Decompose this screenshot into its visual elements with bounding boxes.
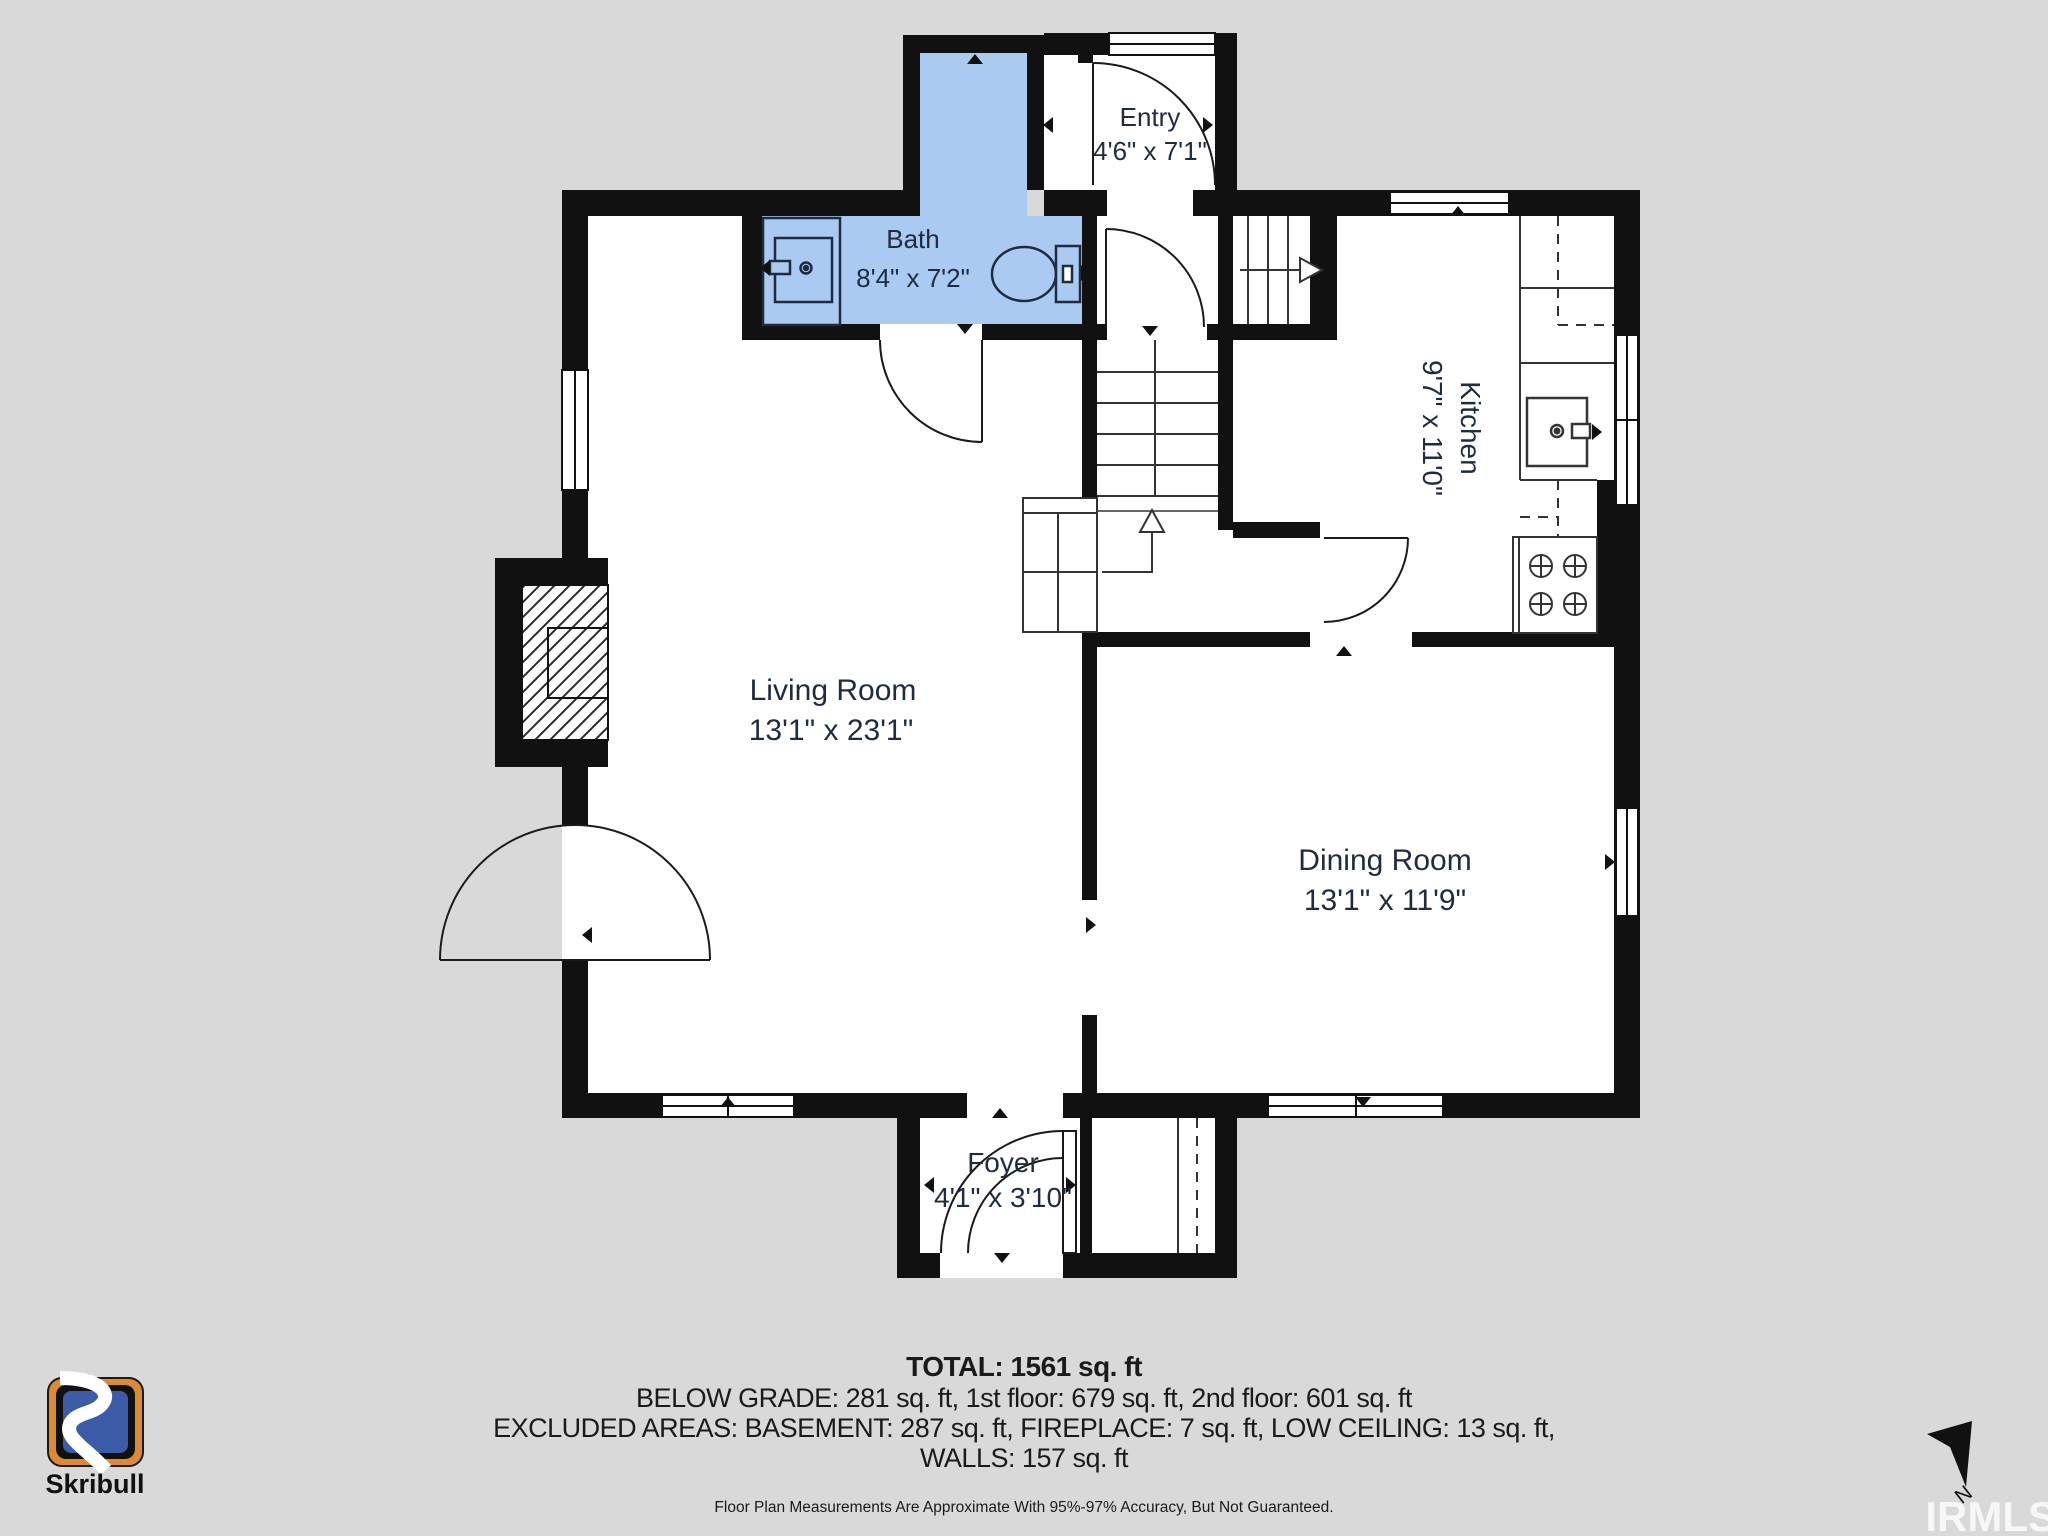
fireplace [522,585,608,740]
summary-line2: EXCLUDED AREAS: BASEMENT: 287 sq. ft, FI… [493,1413,1555,1443]
floor-plan-page: Bath 8'4" x 7'2" Entry 4'6" x 7'1" Kitch… [0,0,2048,1536]
stair-winder-box [1023,498,1097,632]
entry-label: Entry [1120,102,1181,132]
window-living-left [562,370,588,490]
entry-dims: 4'6" x 7'1" [1093,136,1207,166]
summary-line1: BELOW GRADE: 281 sq. ft, 1st floor: 679 … [636,1383,1413,1413]
living-dims: 13'1" x 23'1" [749,714,914,747]
stove [1513,537,1597,633]
bath-dims: 8'4" x 7'2" [856,263,970,293]
summary-total: TOTAL: 1561 sq. ft [906,1351,1142,1382]
logo-text: Skribull [45,1469,144,1499]
dining-dims: 13'1" x 11'9" [1304,884,1466,917]
foyer-label: Foyer [967,1147,1039,1178]
window-dining-right [1616,808,1638,916]
floor-plan-canvas: Bath 8'4" x 7'2" Entry 4'6" x 7'1" Kitch… [0,0,2048,1536]
foyer-dims: 4'1" x 3'10" [934,1182,1072,1213]
room-floors [588,53,1614,1253]
window-dining-bottom [1268,1095,1443,1117]
skribull-logo: Skribull [45,1378,144,1499]
summary-disclaimer: Floor Plan Measurements Are Approximate … [714,1499,1333,1516]
dining-label: Dining Room [1298,844,1471,877]
living-label: Living Room [750,674,917,707]
mls-watermark: IRMLS [1925,1493,2048,1536]
kitchen-dims: 9'7" x 11'0" [1417,360,1448,496]
bath-label: Bath [886,224,940,254]
window-kitchen-top [1390,192,1509,214]
window-entry-top [1109,33,1215,55]
summary-line3: WALLS: 157 sq. ft [920,1443,1129,1473]
kitchen-label: Kitchen [1455,381,1486,474]
toilet [992,246,1080,302]
window-kitchen-right [1616,335,1638,505]
